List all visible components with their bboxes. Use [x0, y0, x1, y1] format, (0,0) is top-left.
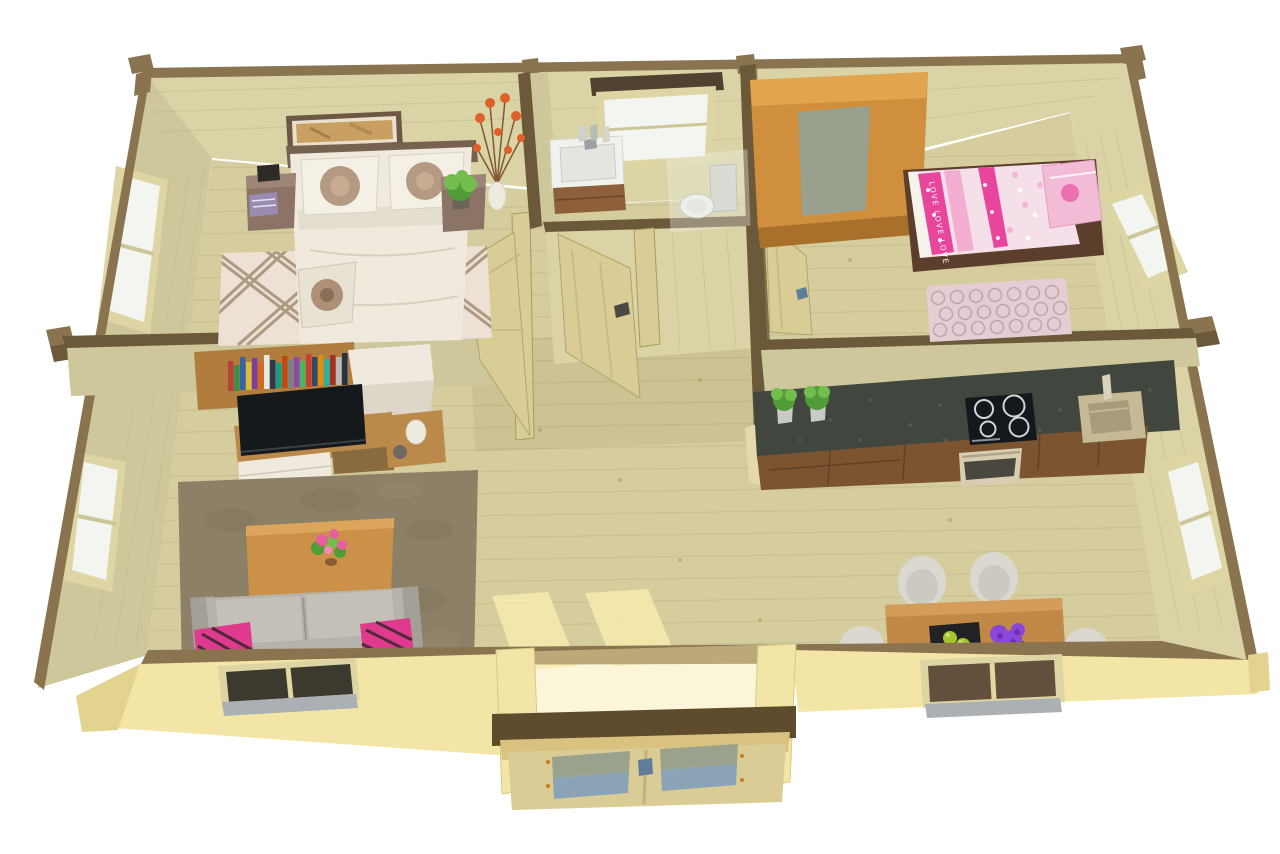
picture-art [296, 120, 393, 143]
kids-bed: LOVE LOVE LOVE [903, 159, 1104, 272]
dining-chair-north-2 [970, 552, 1018, 604]
entrance-porch [492, 644, 796, 810]
side-table [384, 410, 446, 468]
wardrobe-panel [798, 106, 870, 216]
dining-chair-north-1 [898, 556, 946, 608]
oven [959, 448, 1022, 487]
wardrobe [750, 72, 928, 248]
corner-trim-se [1248, 652, 1270, 693]
corner-toilet [668, 151, 749, 231]
nightstand-right [441, 170, 486, 232]
render-canvas: LOVE LOVE LOVE [0, 0, 1280, 854]
porch-door-glass-right [660, 744, 738, 791]
alarm-clock [257, 164, 280, 182]
porch-door-handle [638, 758, 653, 776]
pillow-left [301, 156, 379, 215]
porch-door-glass-left [552, 751, 630, 799]
grey-pot [393, 445, 407, 459]
corner-log-nw2 [134, 70, 152, 96]
induction-hob [965, 393, 1037, 445]
porch-double-doors [508, 744, 786, 810]
floorplan-render: LOVE LOVE LOVE [0, 0, 1280, 854]
accent-pillow [298, 262, 356, 328]
white-lamp [406, 420, 426, 444]
coffee-table [246, 518, 394, 596]
dining-window-south [920, 654, 1065, 718]
kids-pillow [1042, 160, 1102, 228]
kids-rug [926, 278, 1072, 342]
living-window-south [218, 658, 360, 716]
